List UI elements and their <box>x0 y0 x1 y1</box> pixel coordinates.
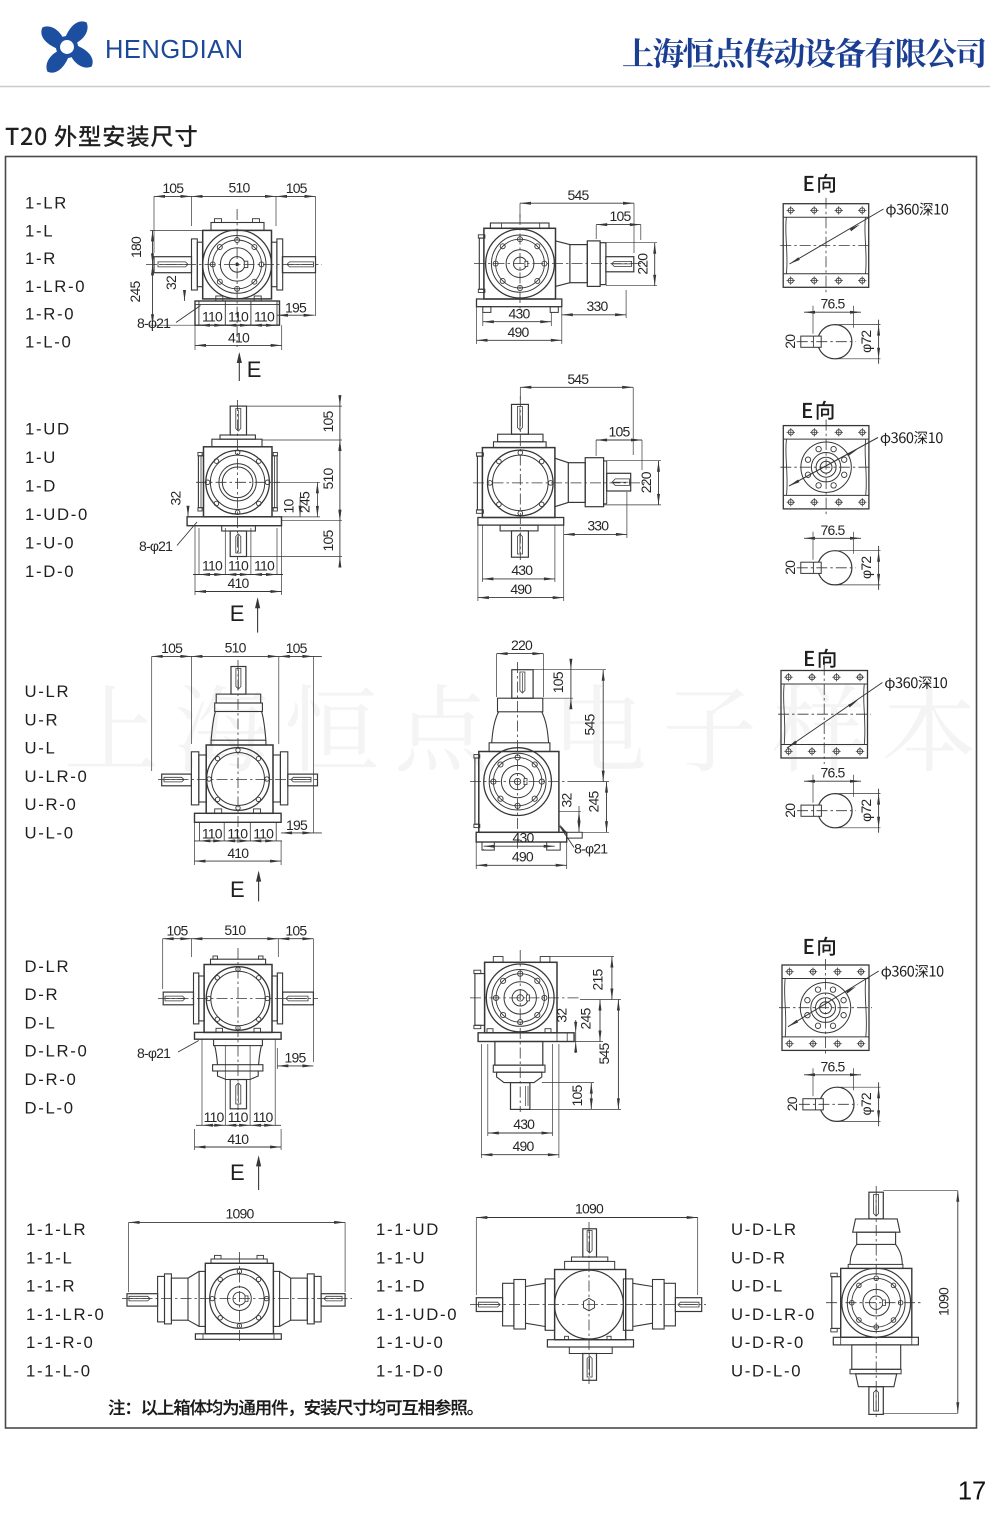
svg-text:510: 510 <box>225 640 247 656</box>
svg-text:32: 32 <box>163 275 179 290</box>
svg-text:430: 430 <box>513 830 535 846</box>
svg-text:105: 105 <box>286 180 308 196</box>
svg-text:D-LR: D-LR <box>25 957 71 976</box>
svg-text:110: 110 <box>202 558 223 574</box>
svg-text:215: 215 <box>590 969 606 991</box>
svg-text:105: 105 <box>286 640 308 656</box>
svg-text:U-D-LR: U-D-LR <box>731 1220 798 1239</box>
svg-text:U-LR-0: U-LR-0 <box>25 767 89 786</box>
svg-text:545: 545 <box>596 1043 612 1065</box>
svg-text:510: 510 <box>224 922 246 938</box>
svg-text:E: E <box>230 1160 245 1185</box>
svg-text:510: 510 <box>320 468 336 490</box>
svg-text:76.5: 76.5 <box>820 296 845 312</box>
svg-text:1-R: 1-R <box>25 249 57 268</box>
svg-text:U-D-R: U-D-R <box>731 1248 787 1267</box>
svg-text:U-L-0: U-L-0 <box>25 824 75 843</box>
svg-text:D-L: D-L <box>25 1013 57 1032</box>
svg-text:1-D: 1-D <box>25 476 57 495</box>
svg-text:430: 430 <box>509 306 531 322</box>
svg-text:1-1-UD-0: 1-1-UD-0 <box>376 1305 458 1324</box>
svg-text:110: 110 <box>202 826 223 842</box>
svg-text:220: 220 <box>638 471 654 493</box>
svg-text:1-1-L-0: 1-1-L-0 <box>26 1362 92 1381</box>
svg-text:110: 110 <box>253 1109 274 1125</box>
svg-text:8-φ21: 8-φ21 <box>137 1045 171 1061</box>
svg-text:E: E <box>230 601 245 626</box>
svg-text:245: 245 <box>585 791 601 813</box>
svg-text:U-LR: U-LR <box>25 682 71 701</box>
svg-text:20: 20 <box>782 803 798 818</box>
svg-text:195: 195 <box>286 817 308 833</box>
svg-text:1090: 1090 <box>936 1287 952 1316</box>
svg-text:E: E <box>230 877 245 902</box>
svg-text:105: 105 <box>161 640 183 656</box>
svg-text:D-R: D-R <box>25 985 60 1004</box>
svg-text:1090: 1090 <box>575 1201 604 1217</box>
svg-text:17: 17 <box>958 1478 986 1506</box>
svg-text:8-φ21: 8-φ21 <box>137 315 171 331</box>
svg-text:1-1-LR: 1-1-LR <box>26 1220 87 1239</box>
svg-text:1-1-R-0: 1-1-R-0 <box>26 1333 94 1352</box>
svg-text:1-1-L: 1-1-L <box>26 1248 73 1267</box>
svg-text:110: 110 <box>202 309 223 325</box>
svg-text:490: 490 <box>510 581 532 597</box>
svg-text:105: 105 <box>609 424 631 440</box>
svg-text:1-1-U-0: 1-1-U-0 <box>376 1333 444 1352</box>
svg-text:U-D-LR-0: U-D-LR-0 <box>731 1305 816 1324</box>
svg-text:D-LR-0: D-LR-0 <box>25 1042 89 1061</box>
svg-text:20: 20 <box>782 334 798 349</box>
svg-text:105: 105 <box>569 1085 585 1107</box>
svg-text:U-D-L: U-D-L <box>731 1277 784 1296</box>
svg-text:105: 105 <box>610 208 632 224</box>
svg-text:1-1-UD: 1-1-UD <box>376 1220 440 1239</box>
svg-text:545: 545 <box>568 187 590 203</box>
svg-text:φ72: φ72 <box>858 799 874 822</box>
svg-text:110: 110 <box>227 826 248 842</box>
svg-text:105: 105 <box>167 922 189 938</box>
svg-text:20: 20 <box>784 1096 800 1111</box>
svg-text:410: 410 <box>228 575 250 591</box>
svg-text:1-1-U: 1-1-U <box>376 1248 426 1267</box>
svg-text:1-LR: 1-LR <box>25 194 68 213</box>
svg-text:φ72: φ72 <box>858 1092 874 1115</box>
svg-text:1-U-0: 1-U-0 <box>25 533 75 552</box>
svg-text:1-UD: 1-UD <box>25 419 71 438</box>
svg-text:105: 105 <box>162 180 184 196</box>
svg-text:1-UD-0: 1-UD-0 <box>25 505 89 524</box>
svg-text:8-φ21: 8-φ21 <box>574 841 608 857</box>
svg-text:110: 110 <box>204 1109 225 1125</box>
svg-text:105: 105 <box>285 922 307 938</box>
svg-text:76.5: 76.5 <box>820 522 845 538</box>
svg-text:195: 195 <box>285 300 307 316</box>
svg-text:20: 20 <box>782 560 798 575</box>
svg-text:φ72: φ72 <box>858 556 874 579</box>
svg-text:1-L-0: 1-L-0 <box>25 332 72 351</box>
svg-text:245: 245 <box>297 491 313 513</box>
svg-text:1-1-LR-0: 1-1-LR-0 <box>26 1305 105 1324</box>
svg-text:545: 545 <box>582 714 598 736</box>
svg-text:180: 180 <box>128 236 144 258</box>
svg-text:E: E <box>247 357 262 382</box>
svg-text:D-L-0: D-L-0 <box>25 1098 75 1117</box>
svg-text:32: 32 <box>559 793 575 808</box>
svg-text:U-L: U-L <box>25 739 57 758</box>
svg-text:76.5: 76.5 <box>820 1058 845 1074</box>
svg-text:410: 410 <box>228 330 250 346</box>
svg-text:1-1-R: 1-1-R <box>26 1277 76 1296</box>
svg-text:220: 220 <box>511 637 533 653</box>
svg-text:105: 105 <box>320 411 336 433</box>
svg-text:U-D-R-0: U-D-R-0 <box>731 1333 805 1352</box>
svg-text:1-1-D: 1-1-D <box>376 1277 426 1296</box>
svg-text:245: 245 <box>127 281 143 303</box>
svg-text:490: 490 <box>512 849 534 865</box>
svg-text:110: 110 <box>228 309 249 325</box>
svg-text:330: 330 <box>587 518 609 534</box>
svg-text:110: 110 <box>254 309 275 325</box>
svg-text:U-R-0: U-R-0 <box>25 795 78 814</box>
svg-text:110: 110 <box>228 558 249 574</box>
svg-text:105: 105 <box>320 530 336 552</box>
svg-text:330: 330 <box>587 298 609 314</box>
svg-text:U-D-L-0: U-D-L-0 <box>731 1362 802 1381</box>
svg-text:1-LR-0: 1-LR-0 <box>25 277 86 296</box>
svg-text:76.5: 76.5 <box>820 765 845 781</box>
svg-text:32: 32 <box>554 1008 570 1023</box>
svg-text:1-U: 1-U <box>25 448 57 467</box>
svg-text:1-D-0: 1-D-0 <box>25 562 75 581</box>
svg-text:245: 245 <box>578 1008 594 1030</box>
svg-text:410: 410 <box>227 1131 249 1147</box>
svg-text:430: 430 <box>513 1116 535 1132</box>
svg-text:110: 110 <box>228 1109 249 1125</box>
svg-text:1-R-0: 1-R-0 <box>25 305 75 324</box>
svg-text:1090: 1090 <box>226 1206 255 1222</box>
svg-text:8-φ21: 8-φ21 <box>139 538 173 554</box>
svg-text:490: 490 <box>513 1138 535 1154</box>
svg-text:220: 220 <box>635 253 651 275</box>
svg-text:545: 545 <box>567 371 589 387</box>
svg-text:HENGDIAN: HENGDIAN <box>105 36 244 64</box>
svg-text:110: 110 <box>254 558 275 574</box>
svg-text:D-R-0: D-R-0 <box>25 1070 78 1089</box>
svg-text:195: 195 <box>285 1050 307 1066</box>
svg-text:105: 105 <box>550 671 566 693</box>
svg-text:430: 430 <box>511 562 533 578</box>
svg-text:1-L: 1-L <box>25 221 54 240</box>
svg-text:32: 32 <box>168 491 184 506</box>
svg-text:490: 490 <box>508 324 530 340</box>
svg-text:φ72: φ72 <box>858 330 874 353</box>
svg-text:10: 10 <box>281 499 297 514</box>
svg-text:410: 410 <box>227 845 249 861</box>
svg-text:U-R: U-R <box>25 710 60 729</box>
svg-text:1-1-D-0: 1-1-D-0 <box>376 1362 444 1381</box>
svg-text:510: 510 <box>229 180 251 196</box>
svg-text:110: 110 <box>253 826 274 842</box>
